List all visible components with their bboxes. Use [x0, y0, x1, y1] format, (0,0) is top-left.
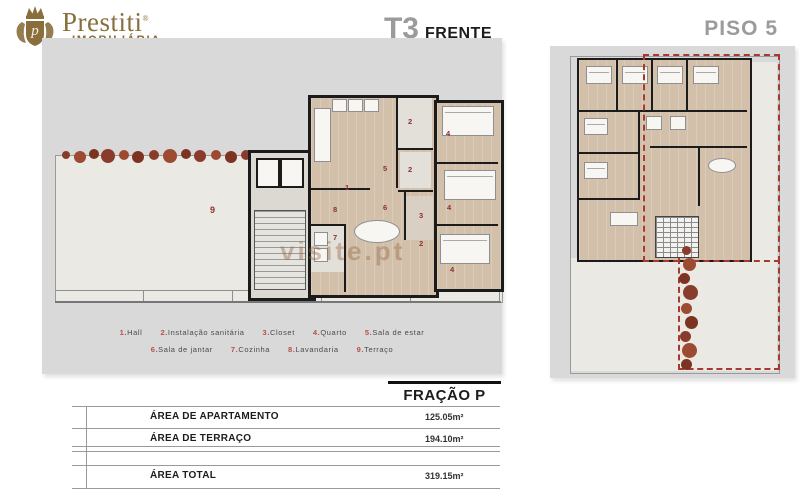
wall-segment	[404, 190, 406, 240]
floorplan-piso5-panel	[550, 46, 795, 378]
legend-name: Sala de estar	[372, 328, 424, 337]
room-legend: 1.Hall 2.Instalação sanitária 3.Closet 4…	[42, 328, 502, 362]
fixture-icon	[610, 212, 638, 226]
legend-item: 1.Hall	[120, 328, 143, 337]
room-marker-quarto: 4	[446, 130, 450, 138]
fraction-title: FRAÇÃO P	[388, 381, 501, 404]
row-label-total: ÁREA TOTAL	[150, 470, 216, 481]
legend-name: Cozinha	[238, 345, 270, 354]
bathroom-small-area	[400, 152, 431, 188]
room-marker-wc: 2	[419, 240, 423, 248]
fraction-highlight-terrace	[678, 258, 780, 370]
wall-segment	[311, 224, 344, 226]
table-vertical-line	[86, 406, 87, 489]
legend-num: 3.	[263, 328, 270, 337]
room-marker-terraco: 9	[210, 206, 215, 214]
bed-icon	[444, 170, 496, 200]
room-marker-sala-jantar: 6	[383, 204, 387, 212]
plan-title-piso5: PISO 5	[690, 17, 778, 41]
wall-segment	[579, 198, 639, 200]
room-marker-sala-estar: 5	[383, 165, 387, 173]
legend-line-1: 1.Hall 2.Instalação sanitária 3.Closet 4…	[42, 328, 502, 337]
legend-name: Sala de jantar	[158, 345, 213, 354]
plants-row-icon	[62, 151, 70, 159]
counter-icon	[332, 99, 347, 112]
legend-num: 2.	[160, 328, 167, 337]
wall-segment	[310, 188, 370, 190]
page: p Prestiti® IMOBILIÁRIA T3 FRENTE PISO 5	[0, 0, 800, 497]
table-line	[72, 446, 500, 447]
table-line	[72, 488, 500, 489]
monogram: p	[30, 23, 39, 39]
legend-item: 7.Cozinha	[231, 345, 270, 354]
room-marker-wc: 2	[408, 166, 412, 174]
table-line	[72, 451, 500, 452]
watermark: visite.pt	[280, 236, 405, 267]
row-value-terraco: 194.10m²	[425, 434, 464, 444]
room-marker-closet: 3	[419, 212, 423, 220]
legend-item: 9.Terraço	[357, 345, 394, 354]
room-marker-lavandaria: 8	[333, 206, 337, 214]
legend-name: Terraço	[364, 345, 393, 354]
wall-segment	[434, 162, 498, 164]
bed-icon	[586, 66, 612, 84]
table-line	[72, 428, 500, 429]
counter-icon	[364, 99, 379, 112]
wall-segment	[396, 95, 398, 188]
wall-segment	[434, 224, 498, 226]
legend-item: 3.Closet	[263, 328, 295, 337]
fraction-highlight-outline	[643, 54, 780, 262]
table-line	[72, 465, 500, 466]
bed-icon	[584, 118, 608, 135]
legend-name: Lavandaria	[296, 345, 339, 354]
room-marker-quarto: 4	[447, 204, 451, 212]
row-value-apartamento: 125.05m²	[425, 412, 464, 422]
sofa-icon	[314, 108, 331, 162]
room-marker-wc: 2	[408, 118, 412, 126]
bathroom-area	[398, 98, 432, 148]
row-value-total: 319.15m²	[425, 471, 464, 481]
table-line	[72, 406, 500, 407]
row-label-terraco: ÁREA DE TERRAÇO	[150, 433, 251, 444]
brand-name-text: Prestiti	[62, 7, 143, 37]
wall-segment	[579, 152, 639, 154]
bed-icon	[584, 162, 608, 179]
legend-name: Hall	[127, 328, 142, 337]
legend-item: 4.Quarto	[313, 328, 347, 337]
legend-name: Quarto	[320, 328, 347, 337]
wall-segment	[638, 110, 640, 200]
room-marker-hall: 1	[345, 184, 349, 192]
legend-item: 2.Instalação sanitária	[160, 328, 244, 337]
wall-segment	[396, 148, 433, 150]
legend-item: 5.Sala de estar	[365, 328, 424, 337]
legend-num: 8.	[288, 345, 295, 354]
wall-segment	[616, 60, 618, 112]
floorplan-t3-panel: 1 2 2 2 3 4 4 4 5 6 7 8 9 visite.pt 1.Ha…	[42, 38, 502, 374]
legend-item: 8.Lavandaria	[288, 345, 339, 354]
registered-mark: ®	[143, 14, 150, 23]
plants-column-icon	[682, 246, 691, 255]
brand-name: Prestiti®	[62, 4, 161, 37]
elevator-icon	[256, 158, 280, 188]
bed-icon	[440, 234, 490, 264]
elevator-icon	[280, 158, 304, 188]
legend-item: 6.Sala de jantar	[151, 345, 213, 354]
legend-name: Instalação sanitária	[168, 328, 245, 337]
legend-name: Closet	[270, 328, 295, 337]
legend-num: 9.	[357, 345, 364, 354]
legend-line-2: 6.Sala de jantar 7.Cozinha 8.Lavandaria …	[42, 345, 502, 354]
counter-icon	[348, 99, 363, 112]
legend-num: 1.	[120, 328, 127, 337]
row-label-apartamento: ÁREA DE APARTAMENTO	[150, 411, 279, 422]
room-marker-quarto: 4	[450, 266, 454, 274]
